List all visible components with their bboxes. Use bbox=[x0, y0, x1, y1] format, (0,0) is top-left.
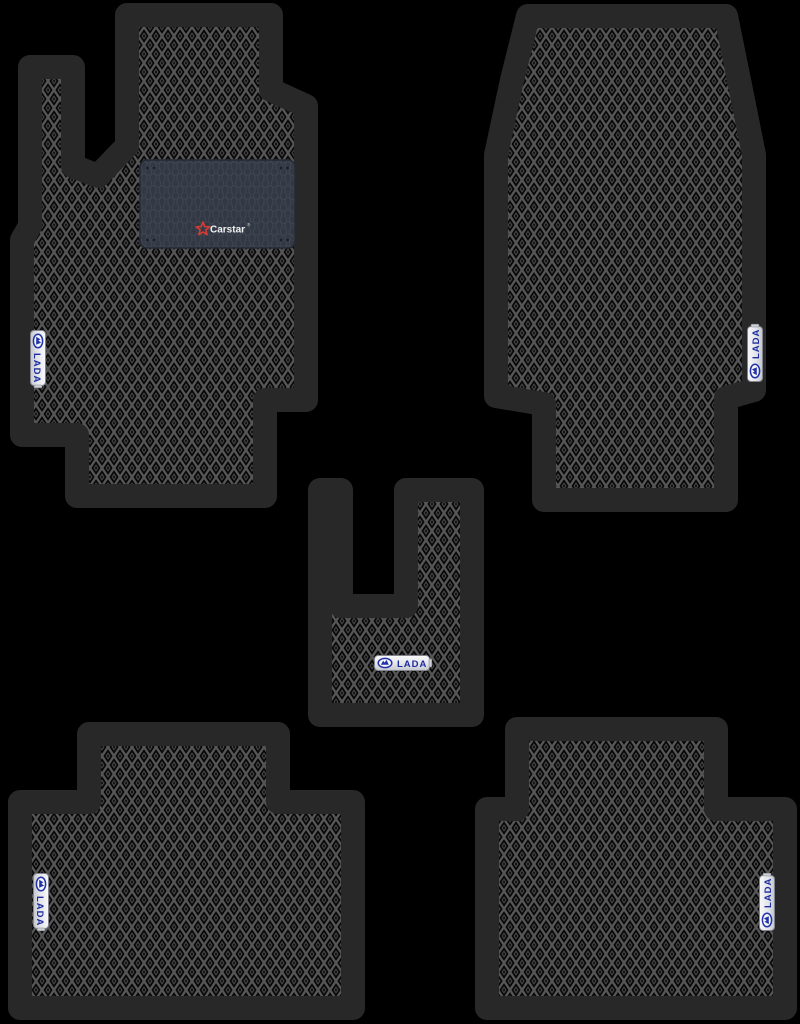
mat-front-passenger bbox=[496, 16, 754, 500]
car-mats-product-image: LADA Carstar ® bbox=[0, 0, 800, 1024]
lada-badge-center-tunnel bbox=[375, 656, 432, 671]
lada-badge-rear-left bbox=[34, 874, 49, 931]
lada-badge-driver-front bbox=[31, 331, 46, 388]
heel-pad: Carstar ® bbox=[140, 160, 295, 248]
carstar-brand-text: Carstar bbox=[210, 225, 245, 236]
mat-driver-front bbox=[22, 15, 306, 496]
lada-badge-rear-right bbox=[760, 873, 775, 930]
mat-center-tunnel bbox=[320, 490, 472, 715]
lada-badge-front-passenger bbox=[748, 324, 763, 381]
product-photo-stage: LADA Carstar ® bbox=[0, 0, 800, 1024]
